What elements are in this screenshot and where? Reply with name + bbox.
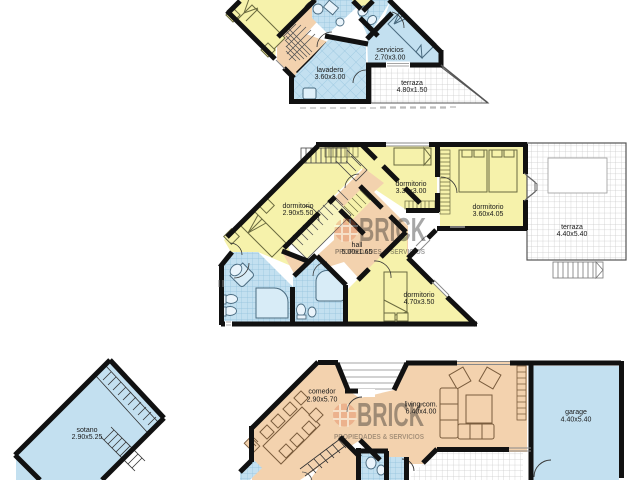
svg-text:2.90x5.70: 2.90x5.70	[307, 397, 338, 404]
svg-text:lavadero: lavadero	[317, 67, 344, 74]
svg-text:dormitorio: dormitorio	[472, 204, 503, 211]
svg-text:4.40x5.40: 4.40x5.40	[557, 231, 588, 238]
svg-text:2.70x3.00: 2.70x3.00	[375, 55, 406, 62]
svg-text:PROPIEDADES & SERVICIOS: PROPIEDADES & SERVICIOS	[335, 247, 425, 256]
svg-text:3.35x3.00: 3.35x3.00	[396, 188, 427, 195]
svg-text:dormitorio: dormitorio	[282, 203, 313, 210]
svg-text:comedor: comedor	[308, 389, 336, 396]
svg-text:4.70x3.50: 4.70x3.50	[404, 299, 435, 306]
svg-text:3.60x4.05: 3.60x4.05	[473, 211, 504, 218]
svg-text:3.60x3.00: 3.60x3.00	[315, 74, 346, 81]
svg-text:servicios: servicios	[376, 47, 404, 54]
svg-text:terraza: terraza	[401, 80, 423, 87]
svg-text:terraza: terraza	[561, 224, 583, 231]
svg-text:2.90x5.25: 2.90x5.25	[72, 434, 103, 441]
svg-text:sotano: sotano	[76, 427, 97, 434]
svg-text:BRICK: BRICK	[359, 211, 426, 248]
svg-text:2.90x5.50: 2.90x5.50	[283, 210, 314, 217]
svg-text:dormitorio: dormitorio	[395, 181, 426, 188]
svg-text:PROPIEDADES & SERVICIOS: PROPIEDADES & SERVICIOS	[334, 432, 424, 441]
svg-text:4.40x5.40: 4.40x5.40	[561, 417, 592, 424]
svg-text:garage: garage	[565, 409, 587, 416]
svg-text:dormitorio: dormitorio	[403, 292, 434, 299]
svg-text:BRICK: BRICK	[357, 396, 424, 433]
svg-text:4.80x1.50: 4.80x1.50	[397, 87, 428, 94]
